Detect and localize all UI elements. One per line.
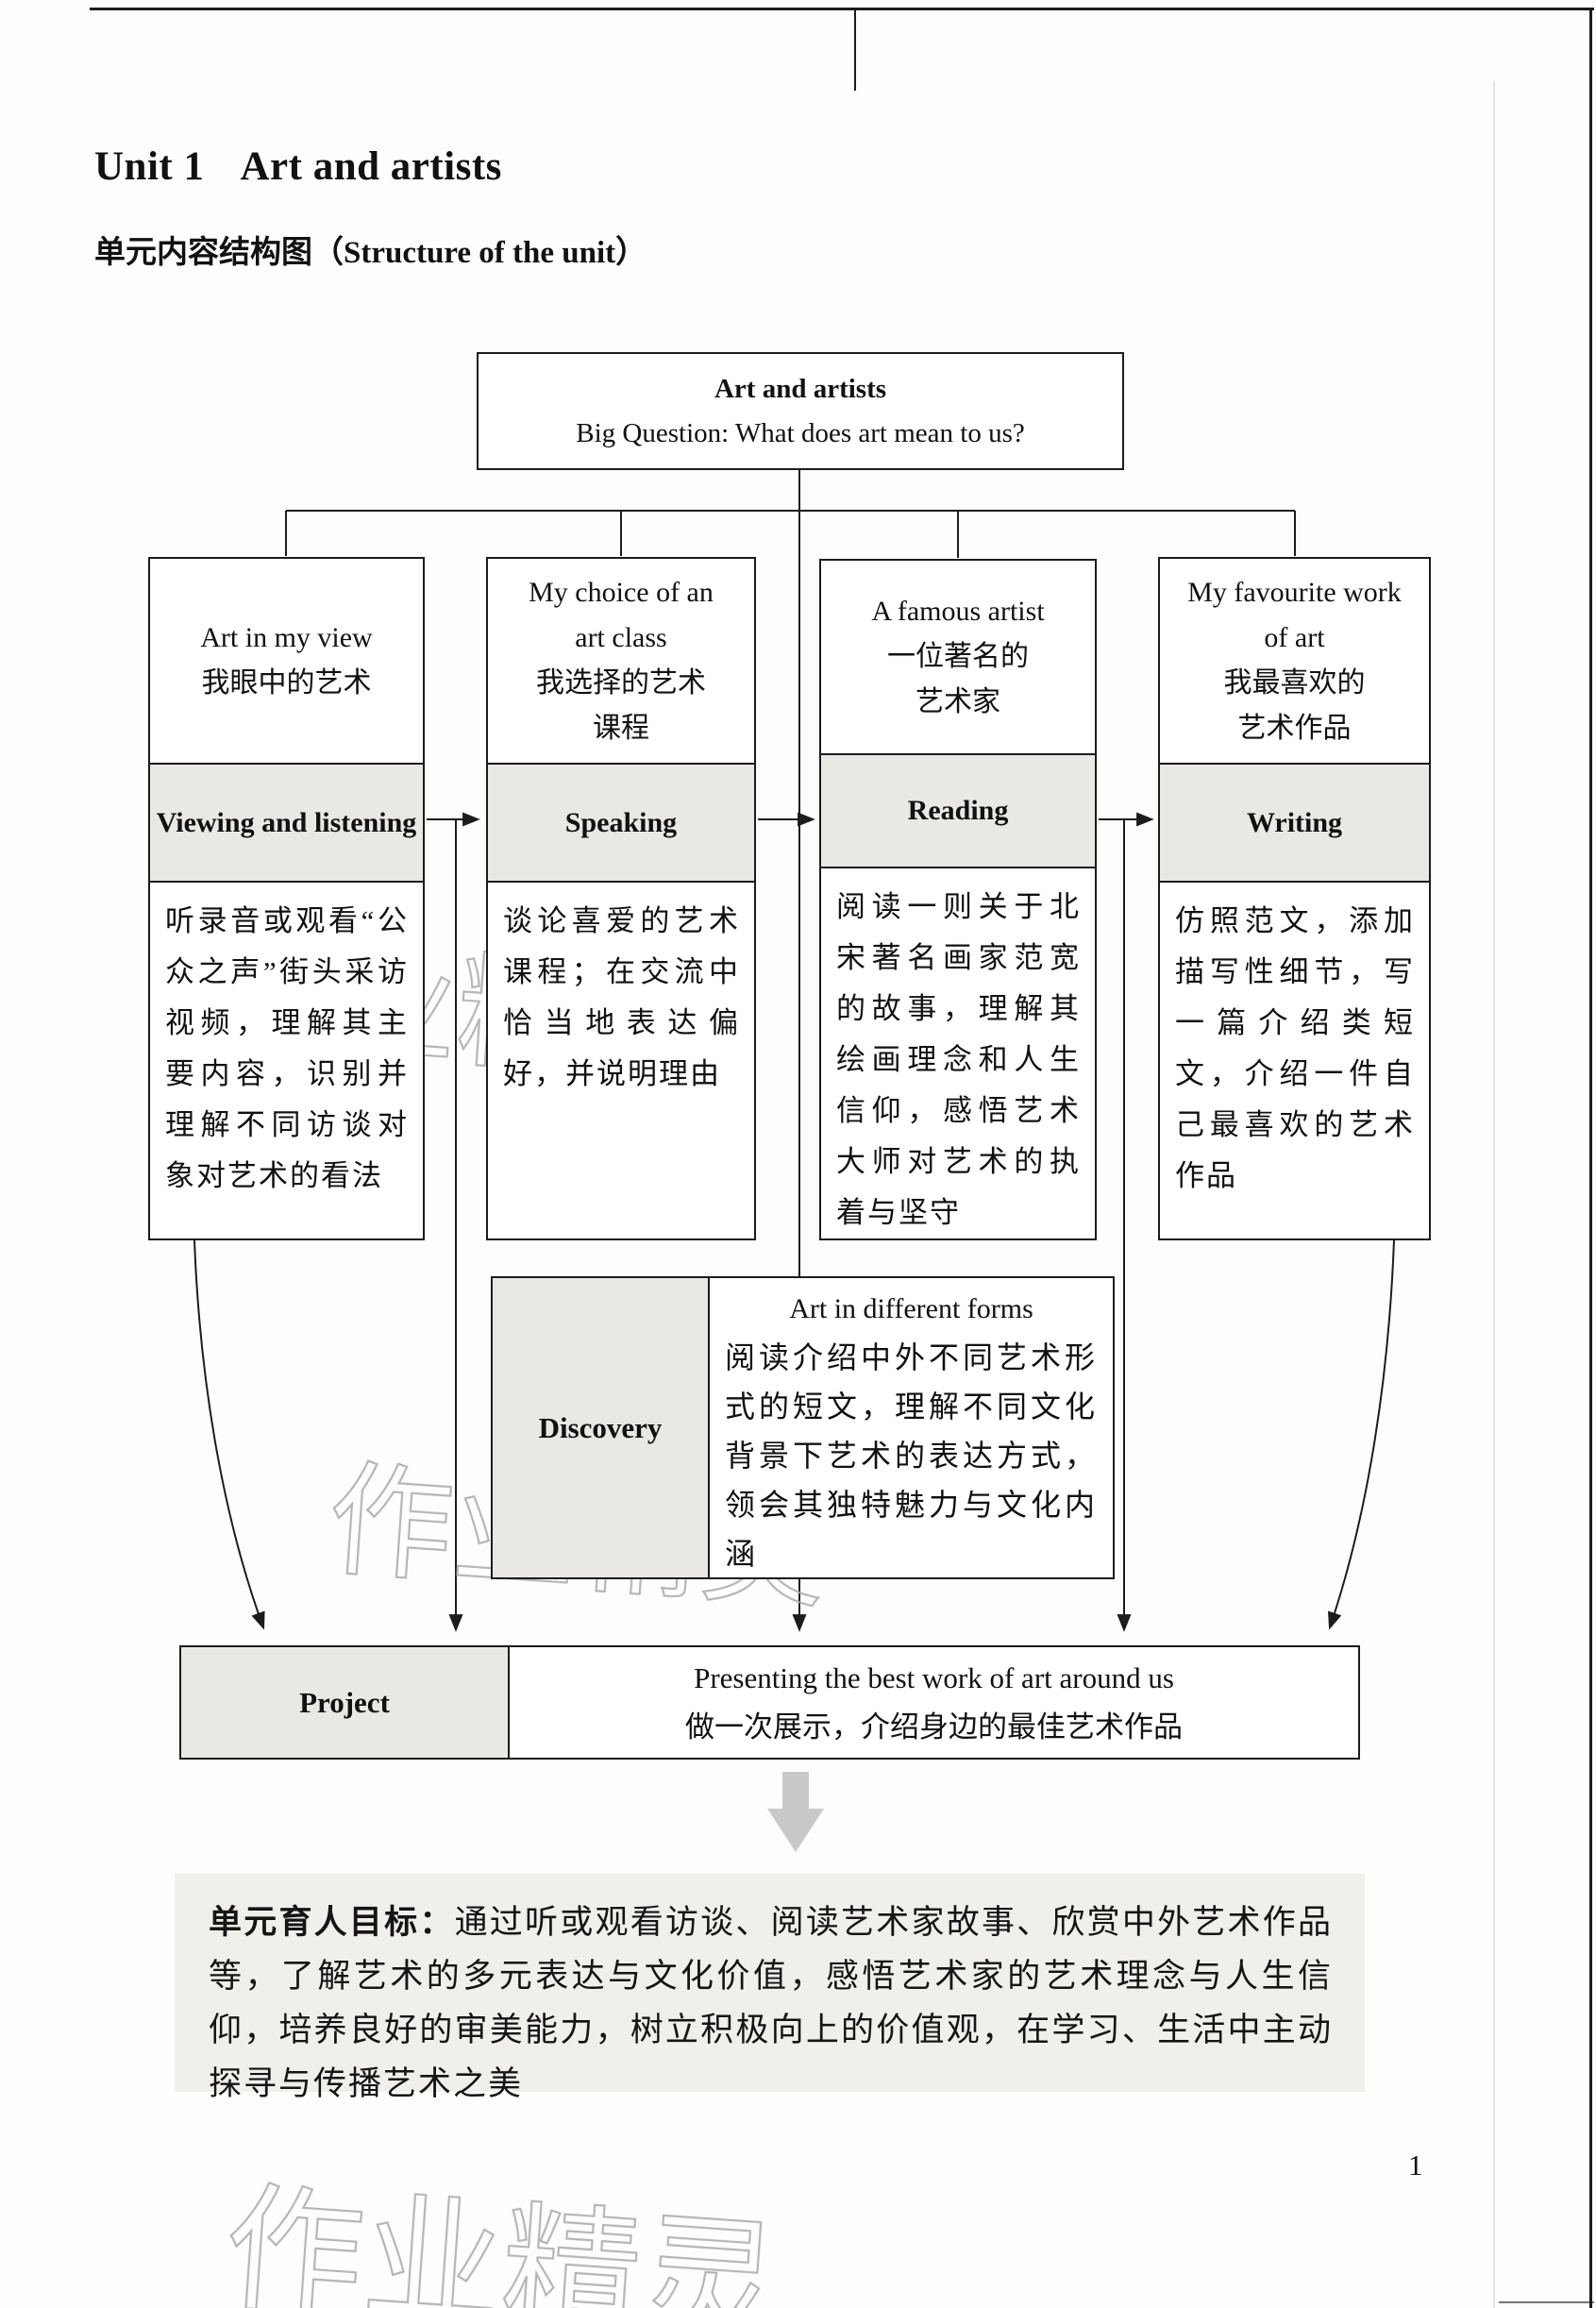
column-description: 谈论喜爱的艺术课程；在交流中恰当地表达偏好，并说明理由 bbox=[488, 883, 754, 1238]
unit-goal-lead: 单元育人目标： bbox=[209, 1904, 455, 1942]
curve-col4-to-project bbox=[1330, 1240, 1394, 1627]
column-topic: Art in my view我眼中的艺术 bbox=[150, 559, 423, 765]
discovery-label: Discovery bbox=[493, 1278, 710, 1577]
column-speaking: My choice of anart class我选择的艺术课程 Speakin… bbox=[486, 557, 756, 1240]
column-reading: A famous artist一位著名的艺术家 Reading 阅读一则关于北宋… bbox=[819, 559, 1097, 1240]
column-skill-label: Speaking bbox=[488, 765, 754, 883]
scan-top-tick bbox=[854, 8, 856, 91]
page-number: 1 bbox=[1408, 2148, 1423, 2182]
scan-bottom-right-mark bbox=[1499, 2301, 1594, 2303]
column-topic: My favourite workof art我最喜欢的艺术作品 bbox=[1160, 559, 1429, 765]
column-description: 阅读一则关于北宋著名画家范宽的故事，理解其绘画理念和人生信仰，感悟艺术大师对艺术… bbox=[821, 868, 1095, 1238]
project-node-box: Project Presenting the best work of art … bbox=[179, 1645, 1360, 1760]
column-description: 仿照范文，添加描写性细节，写一篇介绍类短文，介绍一件自己最喜欢的艺术作品 bbox=[1160, 883, 1429, 1238]
project-content: Presenting the best work of art around u… bbox=[510, 1647, 1358, 1758]
curve-col1-to-project bbox=[194, 1240, 263, 1627]
root-node-box: Art and artists Big Question: What does … bbox=[477, 352, 1124, 470]
discovery-node-box: Discovery Art in different forms 阅读介绍中外不… bbox=[491, 1276, 1115, 1579]
column-topic: A famous artist一位著名的艺术家 bbox=[821, 561, 1095, 755]
root-big-question: Big Question: What does art mean to us? bbox=[576, 412, 1024, 456]
root-title: Art and artists bbox=[714, 367, 886, 412]
column-writing: My favourite workof art我最喜欢的艺术作品 Writing… bbox=[1158, 557, 1431, 1240]
watermark-text: 作业精灵 bbox=[220, 2167, 785, 2308]
section-title-en: （Structure of the unit） bbox=[312, 236, 647, 270]
project-line-en: Presenting the best work of art around u… bbox=[694, 1654, 1174, 1703]
scanned-textbook-page: Unit 1Art and artists 单元内容结构图（Structure … bbox=[0, 0, 1596, 2308]
project-label: Project bbox=[181, 1647, 510, 1758]
unit-label: Unit 1 bbox=[94, 144, 204, 189]
unit-name: Art and artists bbox=[240, 144, 501, 189]
column-skill-label: Viewing and listening bbox=[150, 765, 423, 883]
scan-right-rule bbox=[1589, 8, 1592, 2308]
down-block-arrow bbox=[767, 1772, 824, 1852]
discovery-title: Art in different forms bbox=[725, 1286, 1098, 1333]
scan-top-rule bbox=[90, 8, 1594, 10]
column-skill-label: Reading bbox=[821, 755, 1095, 868]
scan-page-edge-shadow bbox=[1493, 81, 1495, 2308]
discovery-content: Art in different forms 阅读介绍中外不同艺术形式的短文，理… bbox=[710, 1278, 1113, 1577]
section-title-zh: 单元内容结构图 bbox=[94, 233, 312, 270]
project-line-zh: 做一次展示，介绍身边的最佳艺术作品 bbox=[685, 1703, 1183, 1752]
column-description: 听录音或观看“公众之声”街头采访视频，理解其主要内容，识别并理解不同访谈对象对艺… bbox=[150, 883, 423, 1238]
unit-goal-box: 单元育人目标：通过听或观看访谈、阅读艺术家故事、欣赏中外艺术作品等，了解艺术的多… bbox=[175, 1874, 1365, 2092]
column-skill-label: Writing bbox=[1160, 765, 1429, 883]
section-title: 单元内容结构图（Structure of the unit） bbox=[94, 227, 647, 272]
column-viewing-listening: Art in my view我眼中的艺术 Viewing and listeni… bbox=[148, 557, 425, 1240]
page-title: Unit 1Art and artists bbox=[94, 143, 502, 190]
discovery-description: 阅读介绍中外不同艺术形式的短文，理解不同文化背景下艺术的表达方式，领会其独特魅力… bbox=[725, 1333, 1098, 1578]
column-topic: My choice of anart class我选择的艺术课程 bbox=[488, 559, 754, 765]
